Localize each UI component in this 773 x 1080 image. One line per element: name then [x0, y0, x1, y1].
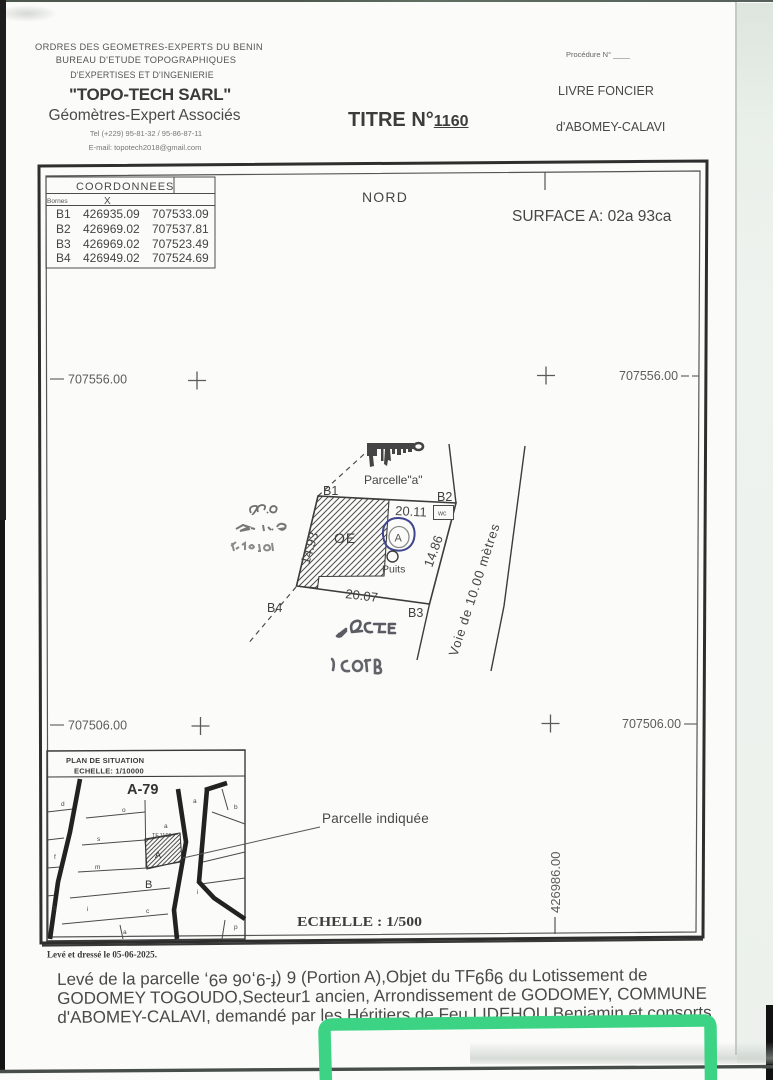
- svg-text:OE: OE: [334, 530, 356, 546]
- svg-text:o: o: [122, 807, 126, 814]
- svg-text:b: b: [53, 905, 57, 912]
- svg-text:b: b: [234, 804, 238, 811]
- svg-text:707506.00: 707506.00: [622, 717, 681, 731]
- svg-text:B2: B2: [56, 222, 71, 236]
- svg-text:707533.09: 707533.09: [152, 207, 209, 221]
- svg-text:Bornes: Bornes: [47, 198, 68, 205]
- svg-text:707506.00: 707506.00: [68, 719, 127, 733]
- svg-text:B3: B3: [408, 606, 423, 620]
- svg-text:PLAN DE SITUATION: PLAN DE SITUATION: [66, 756, 144, 765]
- svg-text:COORDONNEES: COORDONNEES: [76, 181, 174, 193]
- svg-text:A: A: [155, 850, 161, 860]
- svg-text:426949.02: 426949.02: [83, 251, 140, 265]
- svg-text:707556.00: 707556.00: [619, 369, 678, 383]
- svg-text:Voie de 10.00 mètres: Voie de 10.00 mètres: [446, 521, 503, 658]
- svg-text:B: B: [145, 879, 152, 891]
- svg-text:a: a: [193, 798, 197, 805]
- svg-text:A: A: [395, 533, 403, 545]
- svg-text:B3: B3: [56, 237, 71, 251]
- svg-text:Parcelle"a": Parcelle"a": [364, 473, 423, 487]
- svg-text:707523.49: 707523.49: [152, 237, 209, 251]
- svg-text:426935.09: 426935.09: [83, 207, 140, 221]
- svg-text:i: i: [87, 906, 88, 913]
- svg-text:Parcelle indiquée: Parcelle indiquée: [322, 811, 429, 826]
- svg-text:20.07: 20.07: [345, 586, 379, 605]
- svg-text:426969.02: 426969.02: [83, 222, 140, 236]
- svg-text:i: i: [197, 889, 198, 896]
- svg-text:a: a: [164, 823, 168, 830]
- svg-text:X: X: [104, 196, 111, 207]
- svg-text:707524.69: 707524.69: [152, 251, 209, 265]
- svg-text:B2: B2: [437, 490, 452, 504]
- svg-text:B1: B1: [323, 484, 338, 498]
- svg-text:A-79: A-79: [127, 782, 158, 798]
- svg-text:c: c: [146, 908, 150, 915]
- svg-text:B4: B4: [267, 601, 282, 615]
- svg-text:B4: B4: [56, 251, 71, 265]
- svg-text:SURFACE A: 02a 93ca: SURFACE A: 02a 93ca: [512, 208, 672, 225]
- svg-text:s: s: [97, 836, 101, 843]
- svg-text:ECHELLE: 1/10000: ECHELLE: 1/10000: [74, 767, 144, 776]
- svg-text:707537.81: 707537.81: [152, 222, 209, 236]
- svg-text:ECHELLE : 1/500: ECHELLE : 1/500: [297, 915, 422, 930]
- svg-text:wc: wc: [437, 511, 447, 518]
- svg-text:TF.1160: TF.1160: [152, 833, 171, 839]
- svg-text:707556.00: 707556.00: [68, 373, 127, 387]
- svg-text:426986.00: 426986.00: [548, 852, 563, 913]
- svg-text:Puits: Puits: [382, 564, 405, 576]
- svg-text:Levé et dressé le 05-06-2025.: Levé et dressé le 05-06-2025.: [47, 950, 157, 960]
- svg-text:m: m: [95, 864, 100, 871]
- svg-text:426969.02: 426969.02: [83, 237, 140, 251]
- svg-text:14.86: 14.86: [421, 533, 446, 569]
- svg-text:B1: B1: [56, 207, 71, 221]
- svg-text:p: p: [234, 924, 238, 931]
- svg-text:f: f: [54, 854, 56, 861]
- svg-text:a: a: [123, 929, 127, 936]
- svg-text:NORD: NORD: [362, 189, 408, 205]
- svg-text:d: d: [61, 801, 65, 808]
